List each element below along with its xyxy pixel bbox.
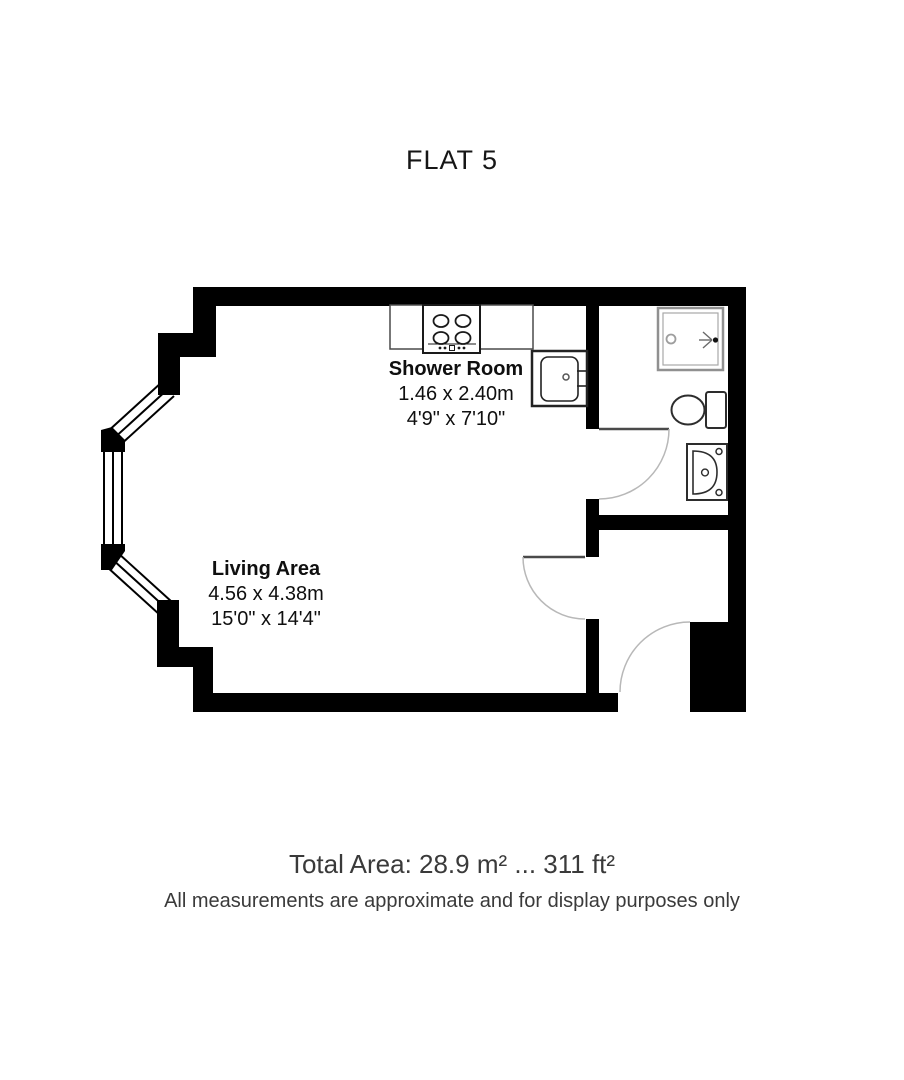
- living-hall-door: [523, 557, 585, 619]
- wall-top: [193, 287, 746, 306]
- living-area-name: Living Area: [156, 556, 376, 582]
- hob-icon: [423, 305, 480, 353]
- toilet-icon: [672, 392, 727, 428]
- wall-step-top-3: [158, 333, 180, 395]
- shower-room-door: [599, 429, 669, 499]
- living-area-label: Living Area 4.56 x 4.38m 15'0" x 14'4": [156, 556, 376, 632]
- shower-room-name: Shower Room: [346, 356, 566, 382]
- entrance-door-leaf: [690, 622, 728, 712]
- shower-room-dim-metric: 1.46 x 2.40m: [346, 382, 566, 407]
- wall-step-bottom-3: [193, 647, 213, 712]
- disclaimer-text: All measurements are approximate and for…: [0, 890, 904, 913]
- doors: [523, 429, 690, 692]
- shower-tray-icon: [658, 308, 723, 370]
- wall-bottom-left: [193, 693, 618, 712]
- wall-partition-lower: [586, 619, 599, 693]
- basin-icon: [687, 444, 727, 500]
- bay-window-vertical: [104, 444, 122, 554]
- entrance-door: [620, 622, 690, 692]
- wall-shower-hall: [586, 515, 728, 530]
- wall-right: [728, 287, 746, 712]
- shower-room-dim-imperial: 4'9" x 7'10": [346, 407, 566, 432]
- page-title: FLAT 5: [0, 145, 904, 176]
- living-area-dim-imperial: 15'0" x 14'4": [156, 607, 376, 632]
- shower-room-label: Shower Room 1.46 x 2.40m 4'9" x 7'10": [346, 356, 566, 432]
- living-area-dim-metric: 4.56 x 4.38m: [156, 582, 376, 607]
- floorplan-page: FLAT 5 Shower Room 1.46 x 2.40m 4'9" x 7…: [0, 0, 904, 1080]
- total-area-text: Total Area: 28.9 m² ... 311 ft²: [0, 849, 904, 880]
